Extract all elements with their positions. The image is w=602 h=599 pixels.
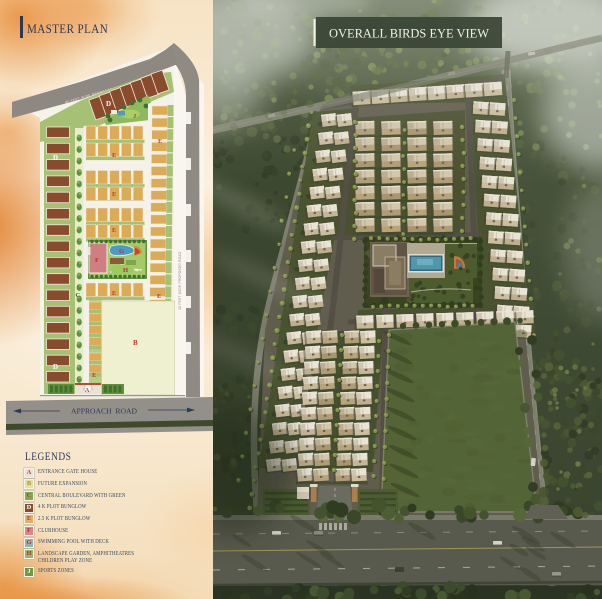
svg-text:D: D (53, 363, 58, 371)
svg-text:40 FEET WIDE PROPOSED ROAD: 40 FEET WIDE PROPOSED ROAD (178, 251, 182, 310)
svg-text:D: D (53, 154, 58, 162)
svg-text:E: E (112, 191, 116, 198)
svg-text:E: E (92, 372, 96, 379)
svg-text:H: H (123, 267, 128, 274)
svg-text:E: E (112, 152, 116, 159)
svg-text:B: B (133, 339, 138, 347)
svg-text:E: E (158, 138, 162, 145)
svg-text:E: E (157, 293, 161, 300)
svg-text:E: E (112, 290, 116, 297)
svg-text:APPROACH ROAD: APPROACH ROAD (71, 407, 138, 416)
svg-text:E: E (112, 227, 116, 234)
svg-text:D: D (106, 100, 111, 108)
svg-text:F: F (95, 257, 99, 264)
svg-text:C: C (76, 292, 81, 299)
svg-text:G: G (119, 248, 124, 255)
svg-text:A: A (85, 388, 90, 394)
svg-text:OVERALL BIRDS EYE VIEW: OVERALL BIRDS EYE VIEW (329, 27, 490, 41)
